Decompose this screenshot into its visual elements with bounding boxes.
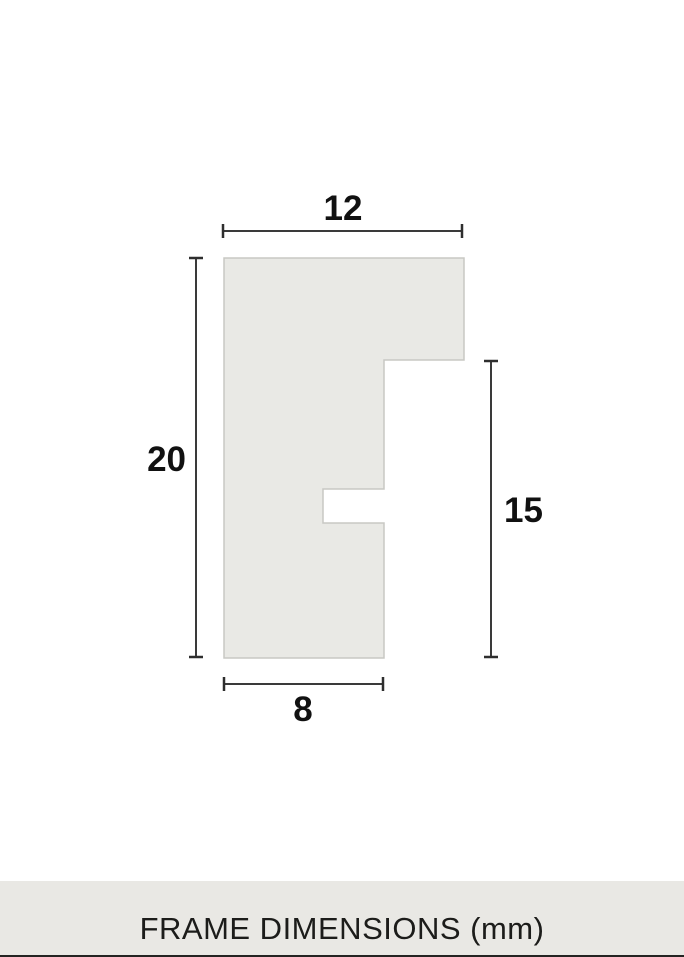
dimension-right-height: 15 (484, 361, 543, 657)
profile-diagram: 12 20 15 8 (0, 0, 684, 881)
frame-dimensions-page: 12 20 15 8 (0, 0, 684, 957)
dimension-label-top-width: 12 (324, 189, 363, 228)
dimension-label-left-height: 20 (147, 440, 186, 479)
dimension-label-right-height: 15 (504, 491, 543, 530)
footer-caption: FRAME DIMENSIONS (mm) (140, 911, 545, 947)
footer-bar: FRAME DIMENSIONS (mm) (0, 881, 684, 955)
dimension-bottom-width: 8 (224, 677, 383, 729)
dimension-top-width: 12 (223, 189, 462, 238)
dimension-left-height: 20 (147, 258, 203, 657)
diagram-area: 12 20 15 8 (0, 0, 684, 881)
frame-profile-shape (224, 258, 464, 658)
dimension-label-bottom-width: 8 (293, 690, 312, 729)
